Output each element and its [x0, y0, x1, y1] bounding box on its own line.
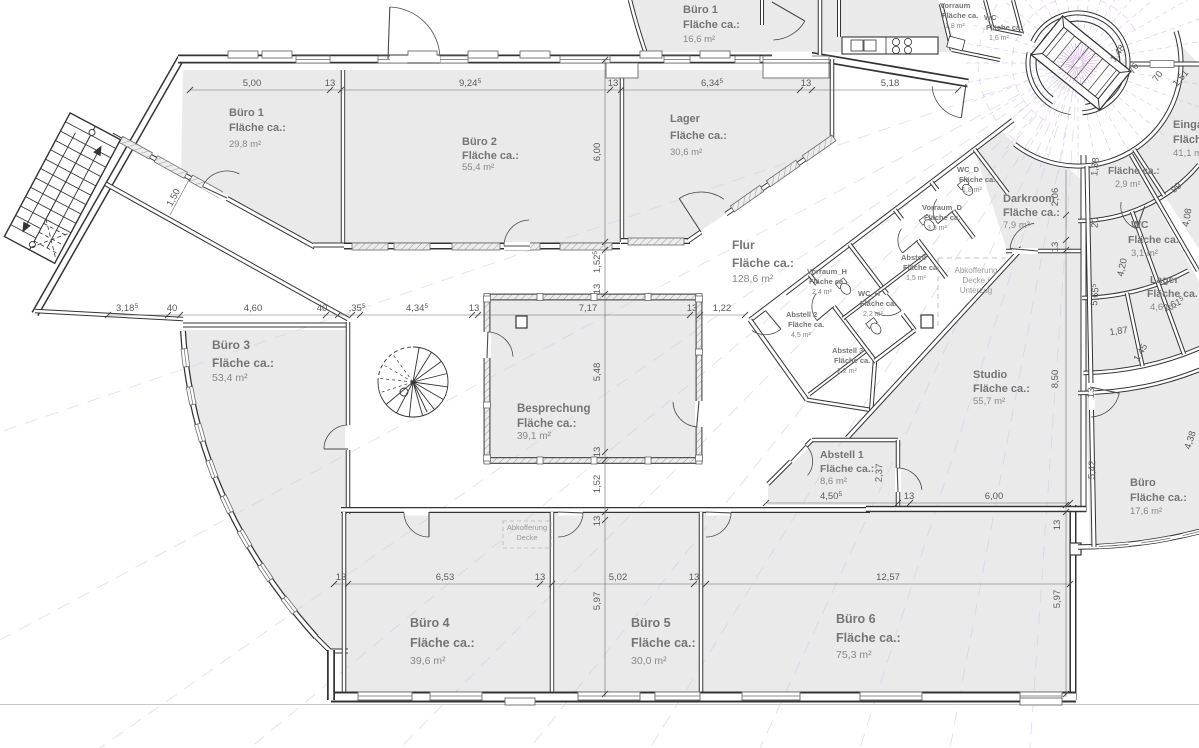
svg-text:29,8 m²: 29,8 m² — [229, 139, 261, 150]
svg-text:8,50: 8,50 — [1050, 370, 1061, 389]
svg-text:13: 13 — [687, 303, 698, 314]
svg-text:7,17: 7,17 — [579, 303, 598, 314]
svg-text:13: 13 — [608, 78, 619, 89]
svg-text:Studio: Studio — [973, 369, 1007, 381]
svg-text:39,1 m²: 39,1 m² — [517, 431, 552, 442]
svg-text:Büro 3: Büro 3 — [212, 338, 250, 352]
svg-text:1,38: 1,38 — [1089, 157, 1102, 176]
svg-text:55,7 m²: 55,7 m² — [973, 396, 1005, 407]
svg-text:Vorraum: Vorraum — [940, 1, 971, 10]
svg-text:5,02: 5,02 — [609, 572, 628, 583]
svg-text:12,57: 12,57 — [876, 572, 900, 583]
svg-text:Büro 4: Büro 4 — [410, 616, 450, 630]
svg-text:40: 40 — [167, 303, 178, 314]
svg-text:Lager: Lager — [670, 113, 701, 125]
svg-text:5,42: 5,42 — [1087, 460, 1099, 479]
svg-text:3,1 m²: 3,1 m² — [1131, 248, 1158, 259]
svg-text:5,97: 5,97 — [592, 592, 603, 611]
svg-text:13: 13 — [1086, 387, 1097, 398]
svg-text:Decke /: Decke / — [962, 276, 990, 285]
svg-text:Fläche ca.: Fläche ca. — [809, 277, 845, 286]
svg-text:Fläche ca.:: Fläche ca.: — [973, 383, 1030, 395]
svg-text:39,6 m²: 39,6 m² — [410, 655, 446, 667]
svg-text:Büro 1: Büro 1 — [229, 107, 264, 119]
svg-text:Unterzug: Unterzug — [960, 286, 992, 295]
svg-text:55,4 m²: 55,4 m² — [462, 162, 494, 173]
svg-text:13: 13 — [336, 572, 347, 583]
svg-text:13: 13 — [1052, 520, 1063, 531]
svg-text:2,37: 2,37 — [874, 463, 886, 482]
svg-text:3,3 m²: 3,3 m² — [927, 225, 948, 232]
svg-text:Fläche ca.:: Fläche ca.: — [410, 636, 475, 650]
svg-text:13: 13 — [325, 78, 336, 89]
svg-text:4,6 m²: 4,6 m² — [1150, 302, 1177, 313]
svg-text:Büro: Büro — [1130, 477, 1156, 489]
svg-text:Abstell: Abstell — [901, 253, 926, 262]
svg-text:WC: WC — [984, 13, 997, 22]
svg-text:5,18: 5,18 — [881, 78, 900, 89]
svg-text:Fläche ca.:: Fläche ca.: — [732, 256, 794, 270]
svg-text:13: 13 — [801, 78, 812, 89]
svg-text:1,8 m²: 1,8 m² — [962, 187, 983, 194]
svg-text:2,2 m²: 2,2 m² — [837, 368, 858, 375]
svg-text:13: 13 — [689, 572, 700, 583]
svg-text:1,6 m²: 1,6 m² — [989, 35, 1010, 42]
svg-text:Fläche ca.:: Fläche ca.: — [212, 356, 274, 370]
svg-text:1,8 m²: 1,8 m² — [945, 23, 966, 30]
svg-text:2,9 m²: 2,9 m² — [1115, 179, 1141, 189]
svg-text:Vorraum_H: Vorraum_H — [807, 267, 847, 276]
svg-text:Besprechung: Besprechung — [517, 403, 591, 415]
svg-text:2,2 m²: 2,2 m² — [863, 311, 884, 318]
svg-text:13: 13 — [904, 491, 915, 502]
svg-text:WC: WC — [1131, 219, 1149, 231]
svg-text:13: 13 — [592, 516, 603, 527]
svg-text:2,4 m²: 2,4 m² — [812, 289, 833, 296]
svg-text:13: 13 — [535, 572, 546, 583]
svg-text:Büro 5: Büro 5 — [631, 616, 671, 630]
svg-text:13: 13 — [592, 284, 603, 295]
svg-text:1,52: 1,52 — [592, 475, 603, 494]
svg-text:6,00: 6,00 — [985, 491, 1004, 502]
svg-text:Fläche ca.: Fläche ca. — [788, 320, 824, 329]
svg-text:Fläche ca.: Fläche ca. — [1128, 234, 1179, 246]
svg-text:20: 20 — [1090, 217, 1102, 228]
svg-text:Eingang: Eingang — [1173, 119, 1199, 131]
svg-text:Fläche ca.: Fläche ca. — [924, 213, 960, 222]
svg-text:75,3 m²: 75,3 m² — [836, 649, 872, 661]
svg-text:Fläche ca.:: Fläche ca.: — [631, 636, 696, 650]
svg-text:13: 13 — [469, 303, 480, 314]
svg-text:4,5 m²: 4,5 m² — [791, 332, 812, 339]
svg-text:Abstell 3: Abstell 3 — [832, 346, 863, 355]
svg-text:13: 13 — [1050, 242, 1061, 253]
svg-text:Fläche ca.:: Fläche ca.: — [836, 631, 901, 645]
svg-text:Fläche ca.: Fläche ca. — [986, 23, 1022, 32]
svg-text:Vorraum_D: Vorraum_D — [922, 203, 962, 212]
svg-text:8,6 m²: 8,6 m² — [820, 476, 847, 487]
svg-text:Büro 6: Büro 6 — [836, 612, 876, 626]
svg-text:1,22: 1,22 — [713, 303, 732, 314]
svg-text:7,9 m²: 7,9 m² — [1003, 220, 1030, 231]
svg-text:Fläche ca.:: Fläche ca.: — [820, 463, 874, 475]
svg-text:5,48: 5,48 — [592, 363, 603, 382]
svg-text:41,1 m²: 41,1 m² — [1173, 148, 1199, 159]
svg-text:6,00: 6,00 — [592, 143, 603, 162]
svg-text:6,53: 6,53 — [436, 572, 455, 583]
svg-text:Abstell 2: Abstell 2 — [786, 310, 817, 319]
svg-text:Darkroom: Darkroom — [1003, 193, 1055, 205]
svg-text:4,60: 4,60 — [244, 303, 263, 314]
svg-text:Lager: Lager — [1150, 274, 1179, 286]
svg-text:13: 13 — [592, 447, 603, 458]
svg-text:5,97: 5,97 — [1052, 590, 1063, 609]
svg-text:Fläche ca.:: Fläche ca.: — [683, 19, 740, 31]
svg-text:Fläche ca.:: Fläche ca.: — [1108, 166, 1160, 177]
svg-text:40: 40 — [317, 303, 328, 314]
svg-text:17,6 m²: 17,6 m² — [1130, 506, 1162, 517]
svg-text:WC_D: WC_D — [957, 165, 980, 174]
svg-text:Abstell 1: Abstell 1 — [820, 449, 864, 461]
svg-text:5,00: 5,00 — [243, 78, 262, 89]
svg-text:Fläche ca.:: Fläche ca.: — [1130, 492, 1187, 504]
svg-text:Abkofferung: Abkofferung — [507, 523, 547, 532]
svg-text:Fläche ca.:: Fläche ca.: — [517, 418, 576, 430]
svg-text:Büro 2: Büro 2 — [462, 136, 497, 148]
svg-text:Fläche ca.: Fläche ca. — [860, 299, 896, 308]
svg-text:128,6 m²: 128,6 m² — [732, 273, 774, 285]
svg-text:Fläche ca.: Fläche ca. — [1147, 288, 1198, 300]
svg-text:Flur: Flur — [732, 238, 755, 252]
svg-text:Fläche ca.:: Fläche ca.: — [462, 150, 519, 162]
svg-text:Fläche ca.:: Fläche ca.: — [229, 122, 286, 134]
svg-text:Fläche ca.:: Fläche ca.: — [1003, 207, 1060, 219]
svg-text:53,4 m²: 53,4 m² — [212, 372, 248, 384]
svg-text:Abkofferung: Abkofferung — [955, 266, 998, 275]
svg-text:Decke: Decke — [516, 533, 537, 542]
svg-text:Fläche ca.:: Fläche ca.: — [1173, 134, 1199, 146]
svg-text:Fläche ca.: Fläche ca. — [942, 11, 978, 20]
svg-text:Fläche ca.: Fläche ca. — [903, 263, 939, 272]
svg-text:16,6 m²: 16,6 m² — [683, 34, 715, 45]
svg-text:30,6 m²: 30,6 m² — [670, 147, 702, 158]
svg-text:Fläche ca.:: Fläche ca.: — [670, 130, 727, 142]
svg-text:1,5 m²: 1,5 m² — [906, 275, 927, 282]
svg-text:30,0 m²: 30,0 m² — [631, 655, 667, 667]
svg-text:Büro 1: Büro 1 — [683, 4, 718, 16]
svg-text:WC_H: WC_H — [858, 289, 880, 298]
svg-text:Fläche ca.: Fläche ca. — [959, 175, 995, 184]
svg-text:Fläche ca.: Fläche ca. — [834, 356, 870, 365]
